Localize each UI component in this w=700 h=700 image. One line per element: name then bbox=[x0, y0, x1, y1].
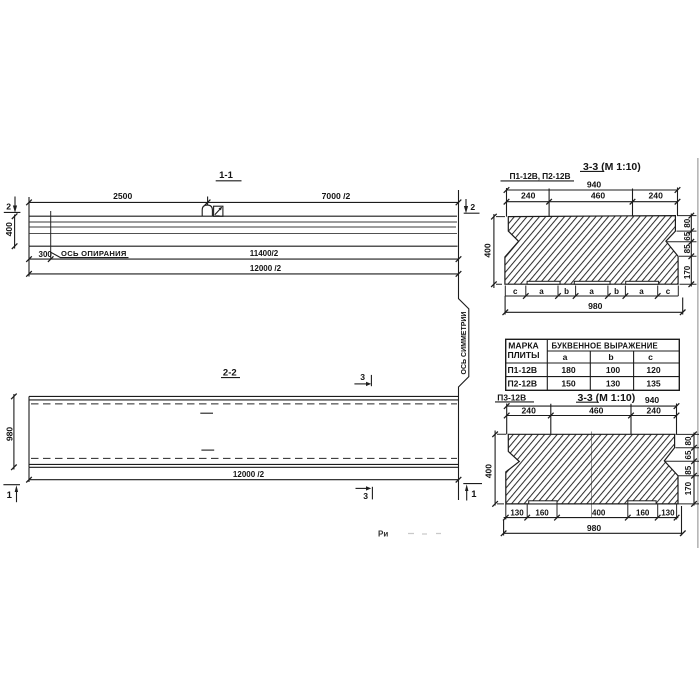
svg-text:a: a bbox=[539, 287, 544, 296]
svg-text:460: 460 bbox=[589, 406, 604, 416]
svg-text:300: 300 bbox=[39, 250, 53, 259]
svg-text:b: b bbox=[614, 287, 619, 296]
svg-text:170: 170 bbox=[684, 481, 693, 495]
svg-text:1: 1 bbox=[471, 489, 477, 500]
svg-text:120: 120 bbox=[646, 365, 661, 375]
svg-text:П3-12В: П3-12В bbox=[497, 392, 526, 402]
svg-text:400: 400 bbox=[592, 508, 606, 517]
svg-text:Ри: Ри bbox=[378, 530, 388, 539]
svg-text:3: 3 bbox=[363, 491, 368, 501]
svg-text:240: 240 bbox=[649, 191, 664, 201]
svg-text:c: c bbox=[648, 352, 653, 362]
svg-text:БУКВЕННОЕ ВЫРАЖЕНИЕ: БУКВЕННОЕ ВЫРАЖЕНИЕ bbox=[552, 342, 658, 351]
svg-text:1-1: 1-1 bbox=[219, 170, 233, 181]
svg-text:2-2: 2-2 bbox=[223, 368, 237, 379]
svg-text:2: 2 bbox=[6, 202, 11, 212]
svg-text:11400/2: 11400/2 bbox=[250, 249, 279, 258]
svg-text:980: 980 bbox=[587, 523, 602, 533]
svg-text:ОСЬ ОПИРАНИЯ: ОСЬ ОПИРАНИЯ bbox=[61, 249, 127, 258]
svg-text:100: 100 bbox=[606, 365, 621, 375]
svg-text:П1-12В: П1-12В bbox=[508, 365, 538, 375]
svg-text:400: 400 bbox=[4, 222, 14, 237]
svg-text:240: 240 bbox=[521, 191, 536, 201]
svg-text:240: 240 bbox=[522, 406, 537, 416]
svg-text:12000 /2: 12000 /2 bbox=[233, 470, 265, 479]
svg-text:400: 400 bbox=[484, 464, 494, 479]
svg-text:a: a bbox=[589, 287, 594, 296]
svg-text:980: 980 bbox=[588, 301, 603, 311]
svg-text:160: 160 bbox=[636, 508, 650, 517]
svg-text:b: b bbox=[608, 352, 613, 362]
svg-text:65: 65 bbox=[684, 450, 693, 459]
svg-text:2: 2 bbox=[470, 202, 475, 212]
svg-text:940: 940 bbox=[587, 180, 602, 190]
svg-text:160: 160 bbox=[535, 508, 549, 517]
svg-text:80: 80 bbox=[683, 218, 692, 227]
svg-text:940: 940 bbox=[645, 395, 660, 405]
svg-text:ОСЬ СИММЕТРИИ: ОСЬ СИММЕТРИИ bbox=[461, 312, 468, 375]
svg-text:a: a bbox=[639, 287, 644, 296]
svg-text:85: 85 bbox=[684, 465, 693, 474]
svg-text:П2-12В: П2-12В bbox=[508, 379, 538, 389]
svg-text:7000 /2: 7000 /2 bbox=[322, 191, 351, 201]
svg-text:65: 65 bbox=[683, 231, 692, 240]
svg-text:150: 150 bbox=[561, 379, 576, 389]
svg-text:12000 /2: 12000 /2 bbox=[250, 264, 282, 273]
svg-text:c: c bbox=[513, 287, 518, 296]
svg-text:3: 3 bbox=[360, 372, 365, 382]
svg-text:130: 130 bbox=[606, 379, 621, 389]
svg-text:980: 980 bbox=[5, 427, 15, 442]
svg-text:П1-12В, П2-12В: П1-12В, П2-12В bbox=[510, 171, 571, 181]
svg-text:2500: 2500 bbox=[113, 191, 132, 201]
svg-text:170: 170 bbox=[683, 265, 692, 279]
svg-text:400: 400 bbox=[483, 243, 493, 258]
svg-text:ПЛИТЫ: ПЛИТЫ bbox=[507, 350, 539, 360]
svg-text:130: 130 bbox=[510, 508, 524, 517]
svg-text:c: c bbox=[666, 287, 671, 296]
svg-text:1: 1 bbox=[7, 490, 13, 501]
svg-text:85: 85 bbox=[683, 244, 692, 253]
svg-text:460: 460 bbox=[591, 191, 606, 201]
svg-text:130: 130 bbox=[661, 508, 675, 517]
svg-text:180: 180 bbox=[561, 365, 576, 375]
svg-text:a: a bbox=[563, 352, 568, 362]
svg-text:240: 240 bbox=[647, 406, 662, 416]
svg-text:135: 135 bbox=[646, 379, 661, 389]
svg-text:b: b bbox=[564, 287, 569, 296]
svg-text:80: 80 bbox=[684, 436, 693, 445]
